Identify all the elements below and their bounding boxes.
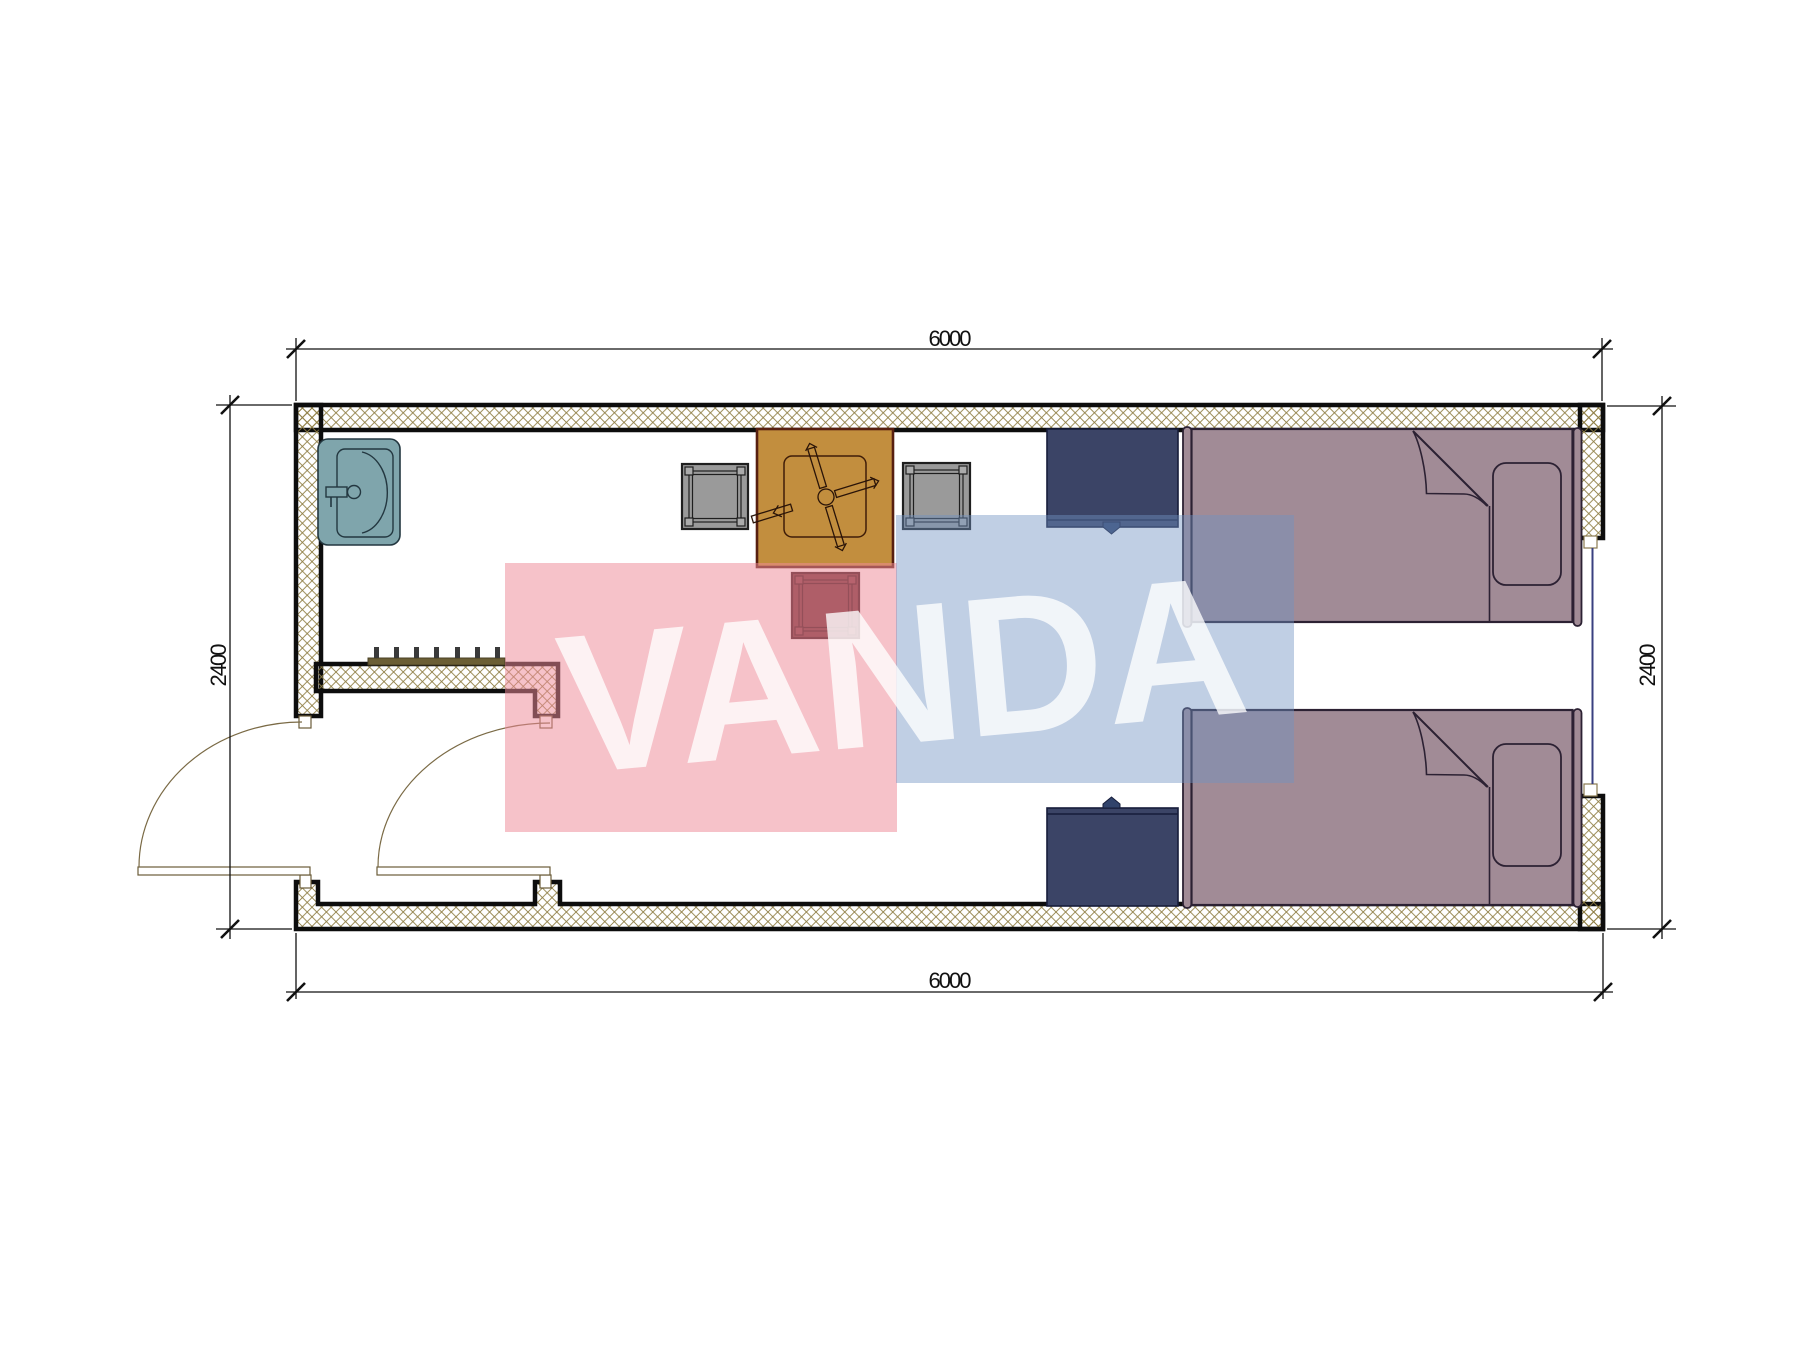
svg-text:2400: 2400 (206, 644, 231, 687)
svg-text:6000: 6000 (929, 968, 972, 993)
svg-text:6000: 6000 (929, 326, 972, 351)
svg-text:2400: 2400 (1635, 644, 1660, 687)
